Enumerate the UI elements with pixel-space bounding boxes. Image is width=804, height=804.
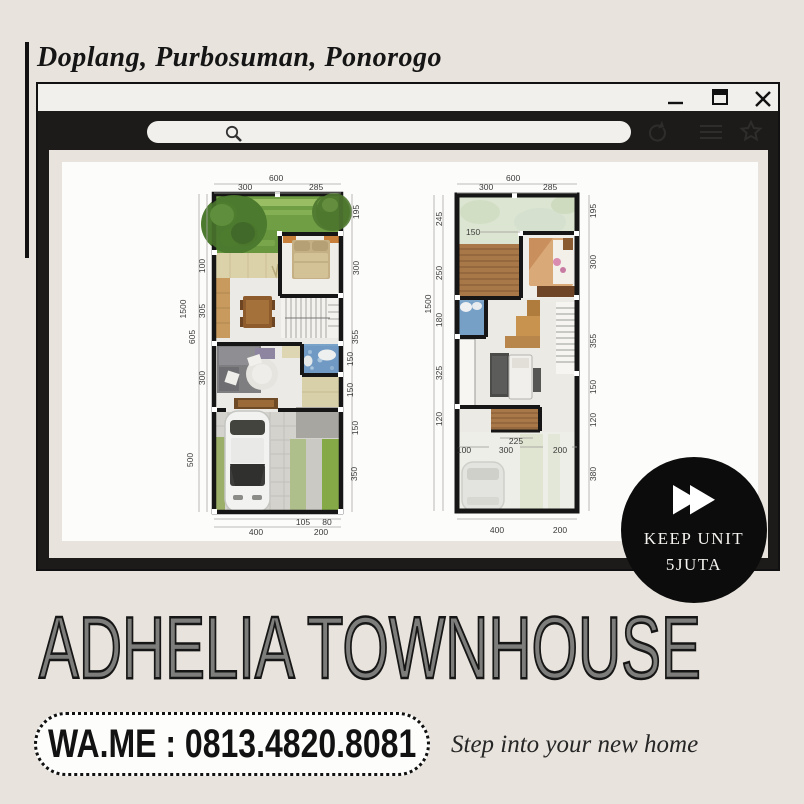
svg-text:150: 150 — [466, 227, 480, 237]
svg-text:180: 180 — [434, 313, 444, 327]
svg-text:350: 350 — [349, 467, 359, 481]
svg-text:150: 150 — [345, 383, 355, 397]
svg-text:300: 300 — [238, 182, 252, 192]
svg-text:300: 300 — [499, 445, 513, 455]
svg-text:355: 355 — [588, 334, 598, 348]
svg-text:355: 355 — [350, 330, 360, 344]
svg-text:300: 300 — [197, 371, 207, 385]
svg-text:380: 380 — [588, 467, 598, 481]
svg-text:500: 500 — [185, 453, 195, 467]
svg-text:400: 400 — [249, 527, 263, 537]
svg-text:120: 120 — [434, 412, 444, 426]
svg-text:150: 150 — [345, 352, 355, 366]
svg-text:80: 80 — [322, 517, 332, 527]
svg-text:305: 305 — [197, 304, 207, 318]
svg-text:100: 100 — [457, 445, 471, 455]
svg-text:300: 300 — [479, 182, 493, 192]
svg-text:200: 200 — [553, 525, 567, 535]
svg-text:1500: 1500 — [178, 299, 188, 318]
svg-text:1500: 1500 — [423, 294, 433, 313]
svg-text:300: 300 — [588, 255, 598, 269]
svg-text:150: 150 — [588, 380, 598, 394]
svg-text:605: 605 — [187, 330, 197, 344]
svg-text:400: 400 — [490, 525, 504, 535]
svg-text:285: 285 — [543, 182, 557, 192]
svg-text:300: 300 — [351, 261, 361, 275]
svg-text:195: 195 — [588, 204, 598, 218]
svg-text:120: 120 — [588, 413, 598, 427]
svg-text:600: 600 — [269, 173, 283, 183]
svg-text:200: 200 — [553, 445, 567, 455]
svg-text:195: 195 — [351, 205, 361, 219]
svg-text:250: 250 — [434, 266, 444, 280]
svg-text:200: 200 — [314, 527, 328, 537]
svg-text:325: 325 — [434, 366, 444, 380]
svg-text:105: 105 — [296, 517, 310, 527]
svg-text:600: 600 — [506, 173, 520, 183]
svg-text:100: 100 — [197, 259, 207, 273]
svg-text:245: 245 — [434, 212, 444, 226]
svg-text:150: 150 — [350, 421, 360, 435]
svg-text:285: 285 — [309, 182, 323, 192]
